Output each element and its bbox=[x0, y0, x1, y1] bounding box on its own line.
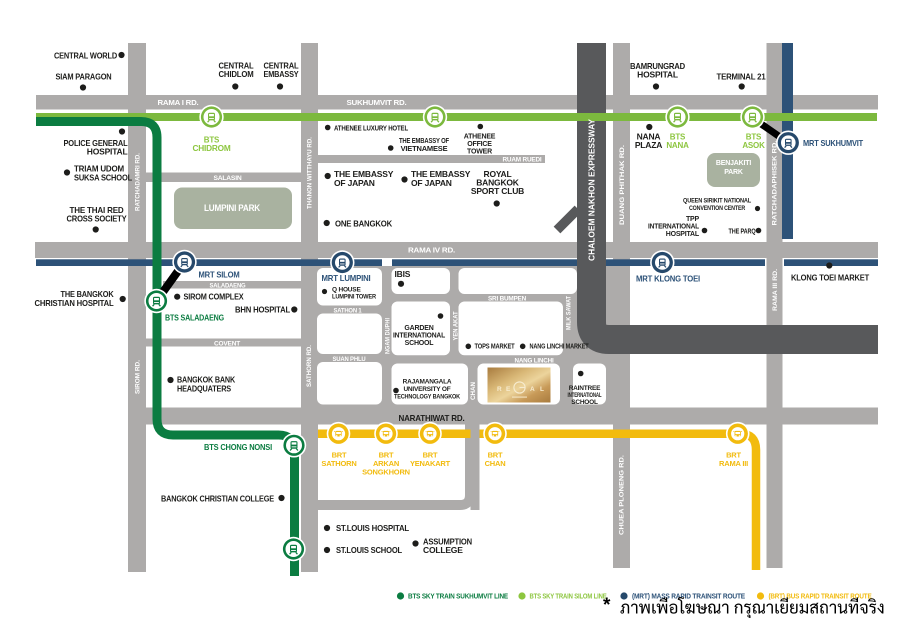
svg-text:PLAZA: PLAZA bbox=[635, 140, 662, 150]
svg-text:PARK: PARK bbox=[724, 169, 743, 176]
svg-text:SATHORN RD.: SATHORN RD. bbox=[307, 345, 313, 387]
svg-text:SIAM PARAGON: SIAM PARAGON bbox=[56, 72, 112, 82]
svg-text:SATHON 1: SATHON 1 bbox=[334, 308, 363, 315]
svg-text:OFFICE: OFFICE bbox=[467, 141, 492, 148]
svg-text:SONGKHORN: SONGKHORN bbox=[362, 468, 410, 477]
svg-text:*: * bbox=[603, 595, 611, 616]
svg-text:BTS CHONG NONSI: BTS CHONG NONSI bbox=[204, 442, 272, 452]
svg-text:DUANG PHITHAK RD.: DUANG PHITHAK RD. bbox=[620, 145, 626, 225]
svg-text:ONE BANGKOK: ONE BANGKOK bbox=[335, 219, 393, 229]
svg-text:BANGKOK CHRISTIAN COLLEGE: BANGKOK CHRISTIAN COLLEGE bbox=[161, 494, 274, 504]
svg-text:SIROM COMPLEX: SIROM COMPLEX bbox=[184, 292, 244, 302]
svg-text:THE PARQ: THE PARQ bbox=[729, 229, 757, 236]
svg-text:COVENT: COVENT bbox=[214, 341, 240, 348]
svg-text:UNIVERSITY OF: UNIVERSITY OF bbox=[403, 386, 450, 393]
svg-text:HEADQUATERS: HEADQUATERS bbox=[177, 384, 231, 394]
svg-text:SUAN PHLU: SUAN PHLU bbox=[333, 356, 366, 363]
svg-text:INTERNATIONAL: INTERNATIONAL bbox=[568, 392, 602, 399]
svg-text:ASOK: ASOK bbox=[742, 141, 765, 150]
svg-text:CHALOEM NAKHON EXPRESSWAY: CHALOEM NAKHON EXPRESSWAY bbox=[588, 118, 597, 261]
svg-text:HOSPITAL: HOSPITAL bbox=[87, 147, 128, 157]
svg-text:ST.LOUIS SCHOOL: ST.LOUIS SCHOOL bbox=[336, 545, 402, 555]
svg-text:ATHENEE LUXURY HOTEL: ATHENEE LUXURY HOTEL bbox=[334, 124, 408, 133]
svg-text:INTERNATIONAL: INTERNATIONAL bbox=[393, 333, 446, 340]
svg-text:MILK SAWAT: MILK SAWAT bbox=[567, 296, 573, 330]
svg-text:SCHOOL: SCHOOL bbox=[571, 399, 598, 406]
svg-text:YEN AKAT: YEN AKAT bbox=[454, 311, 460, 340]
svg-text:INTERNATIONAL: INTERNATIONAL bbox=[648, 224, 700, 231]
svg-text:SRI BUMPEN: SRI BUMPEN bbox=[488, 296, 526, 303]
svg-text:RAMA I RD.: RAMA I RD. bbox=[158, 100, 199, 107]
svg-text:RAJAMANGALA: RAJAMANGALA bbox=[403, 379, 452, 386]
svg-text:CHIDROM: CHIDROM bbox=[193, 144, 232, 153]
svg-text:QUEEN SIRIKIT NATIONAL: QUEEN SIRIKIT NATIONAL bbox=[683, 198, 751, 205]
svg-text:SUKSA SCHOOL: SUKSA SCHOOL bbox=[74, 173, 132, 183]
svg-text:CROSS SOCIETY: CROSS SOCIETY bbox=[67, 214, 127, 224]
svg-text:RAINTREE: RAINTREE bbox=[569, 385, 601, 392]
svg-text:RATCHADAMRI RD.: RATCHADAMRI RD. bbox=[136, 153, 142, 211]
svg-text:THANON WITTHAYU RD.: THANON WITTHAYU RD. bbox=[308, 137, 314, 209]
svg-text:MRT KLONG TOEI: MRT KLONG TOEI bbox=[636, 274, 700, 284]
svg-text:LUMPINI PARK: LUMPINI PARK bbox=[204, 203, 261, 213]
svg-text:YENAKART: YENAKART bbox=[410, 459, 451, 468]
svg-text:SIROM RD.: SIROM RD. bbox=[136, 360, 142, 394]
svg-text:CHRISTIAN HOSPITAL: CHRISTIAN HOSPITAL bbox=[35, 298, 114, 308]
svg-text:OF JAPAN: OF JAPAN bbox=[334, 178, 375, 188]
svg-text:EMBASSY: EMBASSY bbox=[264, 69, 299, 79]
svg-text:MRT SUKHUMVIT: MRT SUKHUMVIT bbox=[803, 138, 864, 148]
svg-text:CHUEA PLONENG RD.: CHUEA PLONENG RD. bbox=[620, 455, 626, 535]
svg-text:VIETNAMESE: VIETNAMESE bbox=[401, 144, 448, 153]
svg-text:NANG LINCHI: NANG LINCHI bbox=[515, 358, 554, 365]
svg-text:BTS SKY TRAIN SILOM LINE: BTS SKY TRAIN SILOM LINE bbox=[530, 594, 607, 601]
svg-text:SALASIN: SALASIN bbox=[214, 175, 243, 182]
svg-text:COLLEGE: COLLEGE bbox=[423, 545, 463, 555]
svg-text:HOSPITAL: HOSPITAL bbox=[666, 231, 700, 238]
svg-text:HOSPITAL: HOSPITAL bbox=[637, 70, 678, 80]
svg-text:BHN HOSPITAL: BHN HOSPITAL bbox=[235, 305, 290, 315]
svg-text:LUMPINI TOWER: LUMPINI TOWER bbox=[332, 294, 376, 301]
svg-text:BTS SALADAENG: BTS SALADAENG bbox=[165, 313, 224, 323]
svg-text:RAMA III RD.: RAMA III RD. bbox=[773, 269, 779, 311]
svg-text:CONVENTION CENTER: CONVENTION CENTER bbox=[689, 205, 745, 212]
svg-text:TECHNOLOGY BANGKOK: TECHNOLOGY BANGKOK bbox=[394, 394, 460, 401]
svg-text:RUAM RUEDI: RUAM RUEDI bbox=[503, 157, 542, 164]
svg-text:SATHORN: SATHORN bbox=[321, 459, 356, 468]
svg-text:MRT SILOM: MRT SILOM bbox=[199, 270, 240, 280]
svg-text:RATCHADAPHISEK RD.: RATCHADAPHISEK RD. bbox=[773, 140, 779, 225]
svg-text:NANG LINCHI MARKET: NANG LINCHI MARKET bbox=[530, 344, 590, 351]
svg-text:ATHENEE: ATHENEE bbox=[464, 134, 496, 141]
svg-text:BTS SKY TRAIN SUKHUMVIT LINE: BTS SKY TRAIN SUKHUMVIT LINE bbox=[408, 594, 508, 601]
svg-text:TPP: TPP bbox=[686, 216, 700, 223]
svg-text:SPORT CLUB: SPORT CLUB bbox=[471, 186, 524, 196]
svg-text:CHAN: CHAN bbox=[485, 459, 506, 468]
svg-text:GARDEN: GARDEN bbox=[404, 325, 433, 332]
svg-text:A: A bbox=[530, 386, 535, 393]
svg-text:TERMINAL 21: TERMINAL 21 bbox=[717, 72, 766, 82]
svg-text:OF JAPAN: OF JAPAN bbox=[411, 178, 452, 188]
svg-text:NANA: NANA bbox=[666, 141, 689, 150]
svg-text:CHAN: CHAN bbox=[470, 382, 477, 400]
svg-text:L: L bbox=[540, 386, 544, 393]
svg-text:TOPS MARKET: TOPS MARKET bbox=[475, 344, 516, 351]
svg-text:BENJAKITI: BENJAKITI bbox=[716, 160, 751, 167]
svg-text:TOWER: TOWER bbox=[467, 149, 492, 156]
svg-text:CHIDLOM: CHIDLOM bbox=[219, 69, 254, 79]
svg-text:ST.LOUIS HOSPITAL: ST.LOUIS HOSPITAL bbox=[336, 523, 409, 533]
svg-text:RAMA IV RD.: RAMA IV RD. bbox=[408, 248, 455, 255]
svg-text:MRT LUMPINI: MRT LUMPINI bbox=[322, 273, 371, 283]
svg-text:SCHOOL: SCHOOL bbox=[405, 340, 435, 347]
svg-text:NARATHIWAT RD.: NARATHIWAT RD. bbox=[399, 413, 465, 423]
svg-text:Q HOUSE: Q HOUSE bbox=[332, 287, 361, 294]
svg-text:(MRT) MASS RAPID TRAINSIT ROUT: (MRT) MASS RAPID TRAINSIT ROUTE bbox=[632, 594, 745, 601]
svg-text:R: R bbox=[497, 386, 502, 393]
svg-text:RAMA III: RAMA III bbox=[719, 459, 748, 468]
svg-text:IBIS: IBIS bbox=[395, 269, 411, 279]
svg-text:NGAM DUPHI: NGAM DUPHI bbox=[385, 318, 391, 354]
svg-text:SUKHUMVIT RD.: SUKHUMVIT RD. bbox=[347, 100, 407, 107]
svg-text:SALADAENG: SALADAENG bbox=[210, 283, 246, 290]
svg-text:KLONG TOEI MARKET: KLONG TOEI MARKET bbox=[791, 273, 870, 283]
svg-text:CENTRAL WORLD: CENTRAL WORLD bbox=[54, 51, 117, 61]
svg-text:E: E bbox=[506, 386, 511, 393]
